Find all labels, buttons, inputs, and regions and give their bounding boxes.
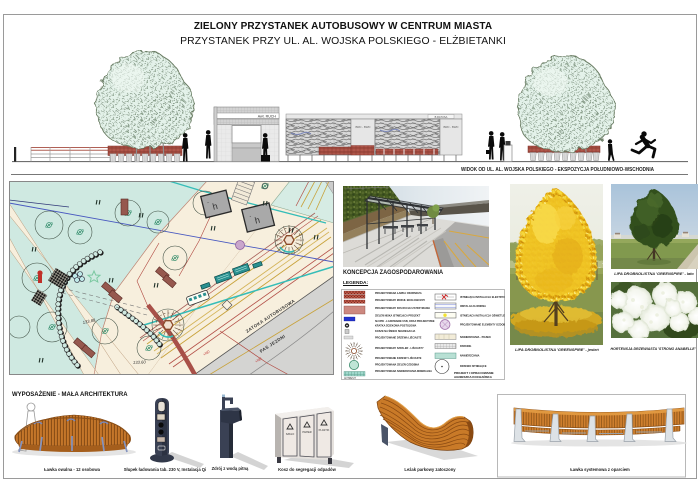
svg-text:PROJEKTOWANA ŁAWKA OSOBNICZA: PROJEKTOWANA ŁAWKA OSOBNICZA <box>375 292 422 295</box>
svg-text:NAWIERZCHNIA: NAWIERZCHNIA <box>460 355 480 358</box>
svg-text:PROJEKTOWANY PAS RUCHU ZATRZYM: PROJEKTOWANY PAS RUCHU ZATRZYMANIA <box>375 307 430 310</box>
svg-text:PROJEKTOWANY MODUŁ EKOLOGICZNY: PROJEKTOWANY MODUŁ EKOLOGICZNY <box>375 299 425 302</box>
svg-text:NAWIERZCHNIA - PIASEK: NAWIERZCHNIA - PIASEK <box>460 336 491 339</box>
svg-text:DRZEWO ISTNIEJĄCE: DRZEWO ISTNIEJĄCE <box>460 365 487 368</box>
svg-text:PROJEKTOWANE KRZEWY LIŚCIASTE: PROJEKTOWANE KRZEWY LIŚCIASTE <box>375 357 422 360</box>
svg-text:BRD - BWD: BRD - BWD <box>356 125 371 129</box>
svg-text:B RATUSA: B RATUSA <box>435 115 448 119</box>
svg-text:SZKŁO: SZKŁO <box>286 432 295 436</box>
svg-text:KRATKA ŚCIEKOWA POSTOJOWA: KRATKA ŚCIEKOWA POSTOJOWA <box>375 325 416 328</box>
svg-text:Awt. RUCH: Awt. RUCH <box>258 115 277 119</box>
svg-text:PAPIER: PAPIER <box>302 430 311 434</box>
svg-text:PROJEKTOWANE ELEMENTY OZDOBNE: PROJEKTOWANE ELEMENTY OZDOBNE <box>460 324 505 327</box>
svg-text:INSTALACJA WODNA: INSTALACJA WODNA <box>460 305 486 308</box>
svg-text:KOSZE NA ŚMIECI SEGREGACJA: KOSZE NA ŚMIECI SEGREGACJA <box>375 330 416 333</box>
svg-text:ISTNIEJĄCA INSTALACJA OŚWIETLE: ISTNIEJĄCA INSTALACJA OŚWIETLENIOWA <box>460 315 505 318</box>
svg-text:PROJEKTOWANE DRZEWA LIŚCIASTE: PROJEKTOWANE DRZEWA LIŚCIASTE <box>375 337 422 340</box>
svg-text:ZIELEŃ NISKA ISTNIEJĄCA PROJEK: ZIELEŃ NISKA ISTNIEJĄCA PROJEKT <box>375 315 421 318</box>
svg-text:PROJEKTOWANY SZPALER - LIŚCIAS: PROJEKTOWANY SZPALER - LIŚCIASTY <box>375 347 424 350</box>
svg-text:PLASTIK: PLASTIK <box>319 428 330 432</box>
svg-text:PROJEKTOWANA ZIELEŃ OZDOBNA: PROJEKTOWANA ZIELEŃ OZDOBNA <box>375 364 419 367</box>
svg-text:ANTRESIT: ANTRESIT <box>344 377 356 380</box>
svg-text:PARKING: PARKING <box>460 345 471 348</box>
svg-text:SŁUPKI - ŁADOWANIE USB, ORAZ P: SŁUPKI - ŁADOWANIE USB, ORAZ PROJEKTOWE <box>375 320 435 323</box>
svg-text:ISTNIEJĄCA INSTALACJA ELEKTRYC: ISTNIEJĄCA INSTALACJA ELEKTRYCZNA <box>460 296 505 299</box>
svg-text:AGNIESZKA KOCHAŃSKA: AGNIESZKA KOCHAŃSKA <box>454 374 493 379</box>
svg-text:133.60: 133.60 <box>133 359 147 365</box>
svg-text:BRD - BWD: BRD - BWD <box>444 125 459 129</box>
svg-text:PROJEKTOWANA NAWIERZCHNIA MINE: PROJEKTOWANA NAWIERZCHNIA MINERALNA <box>375 370 432 373</box>
